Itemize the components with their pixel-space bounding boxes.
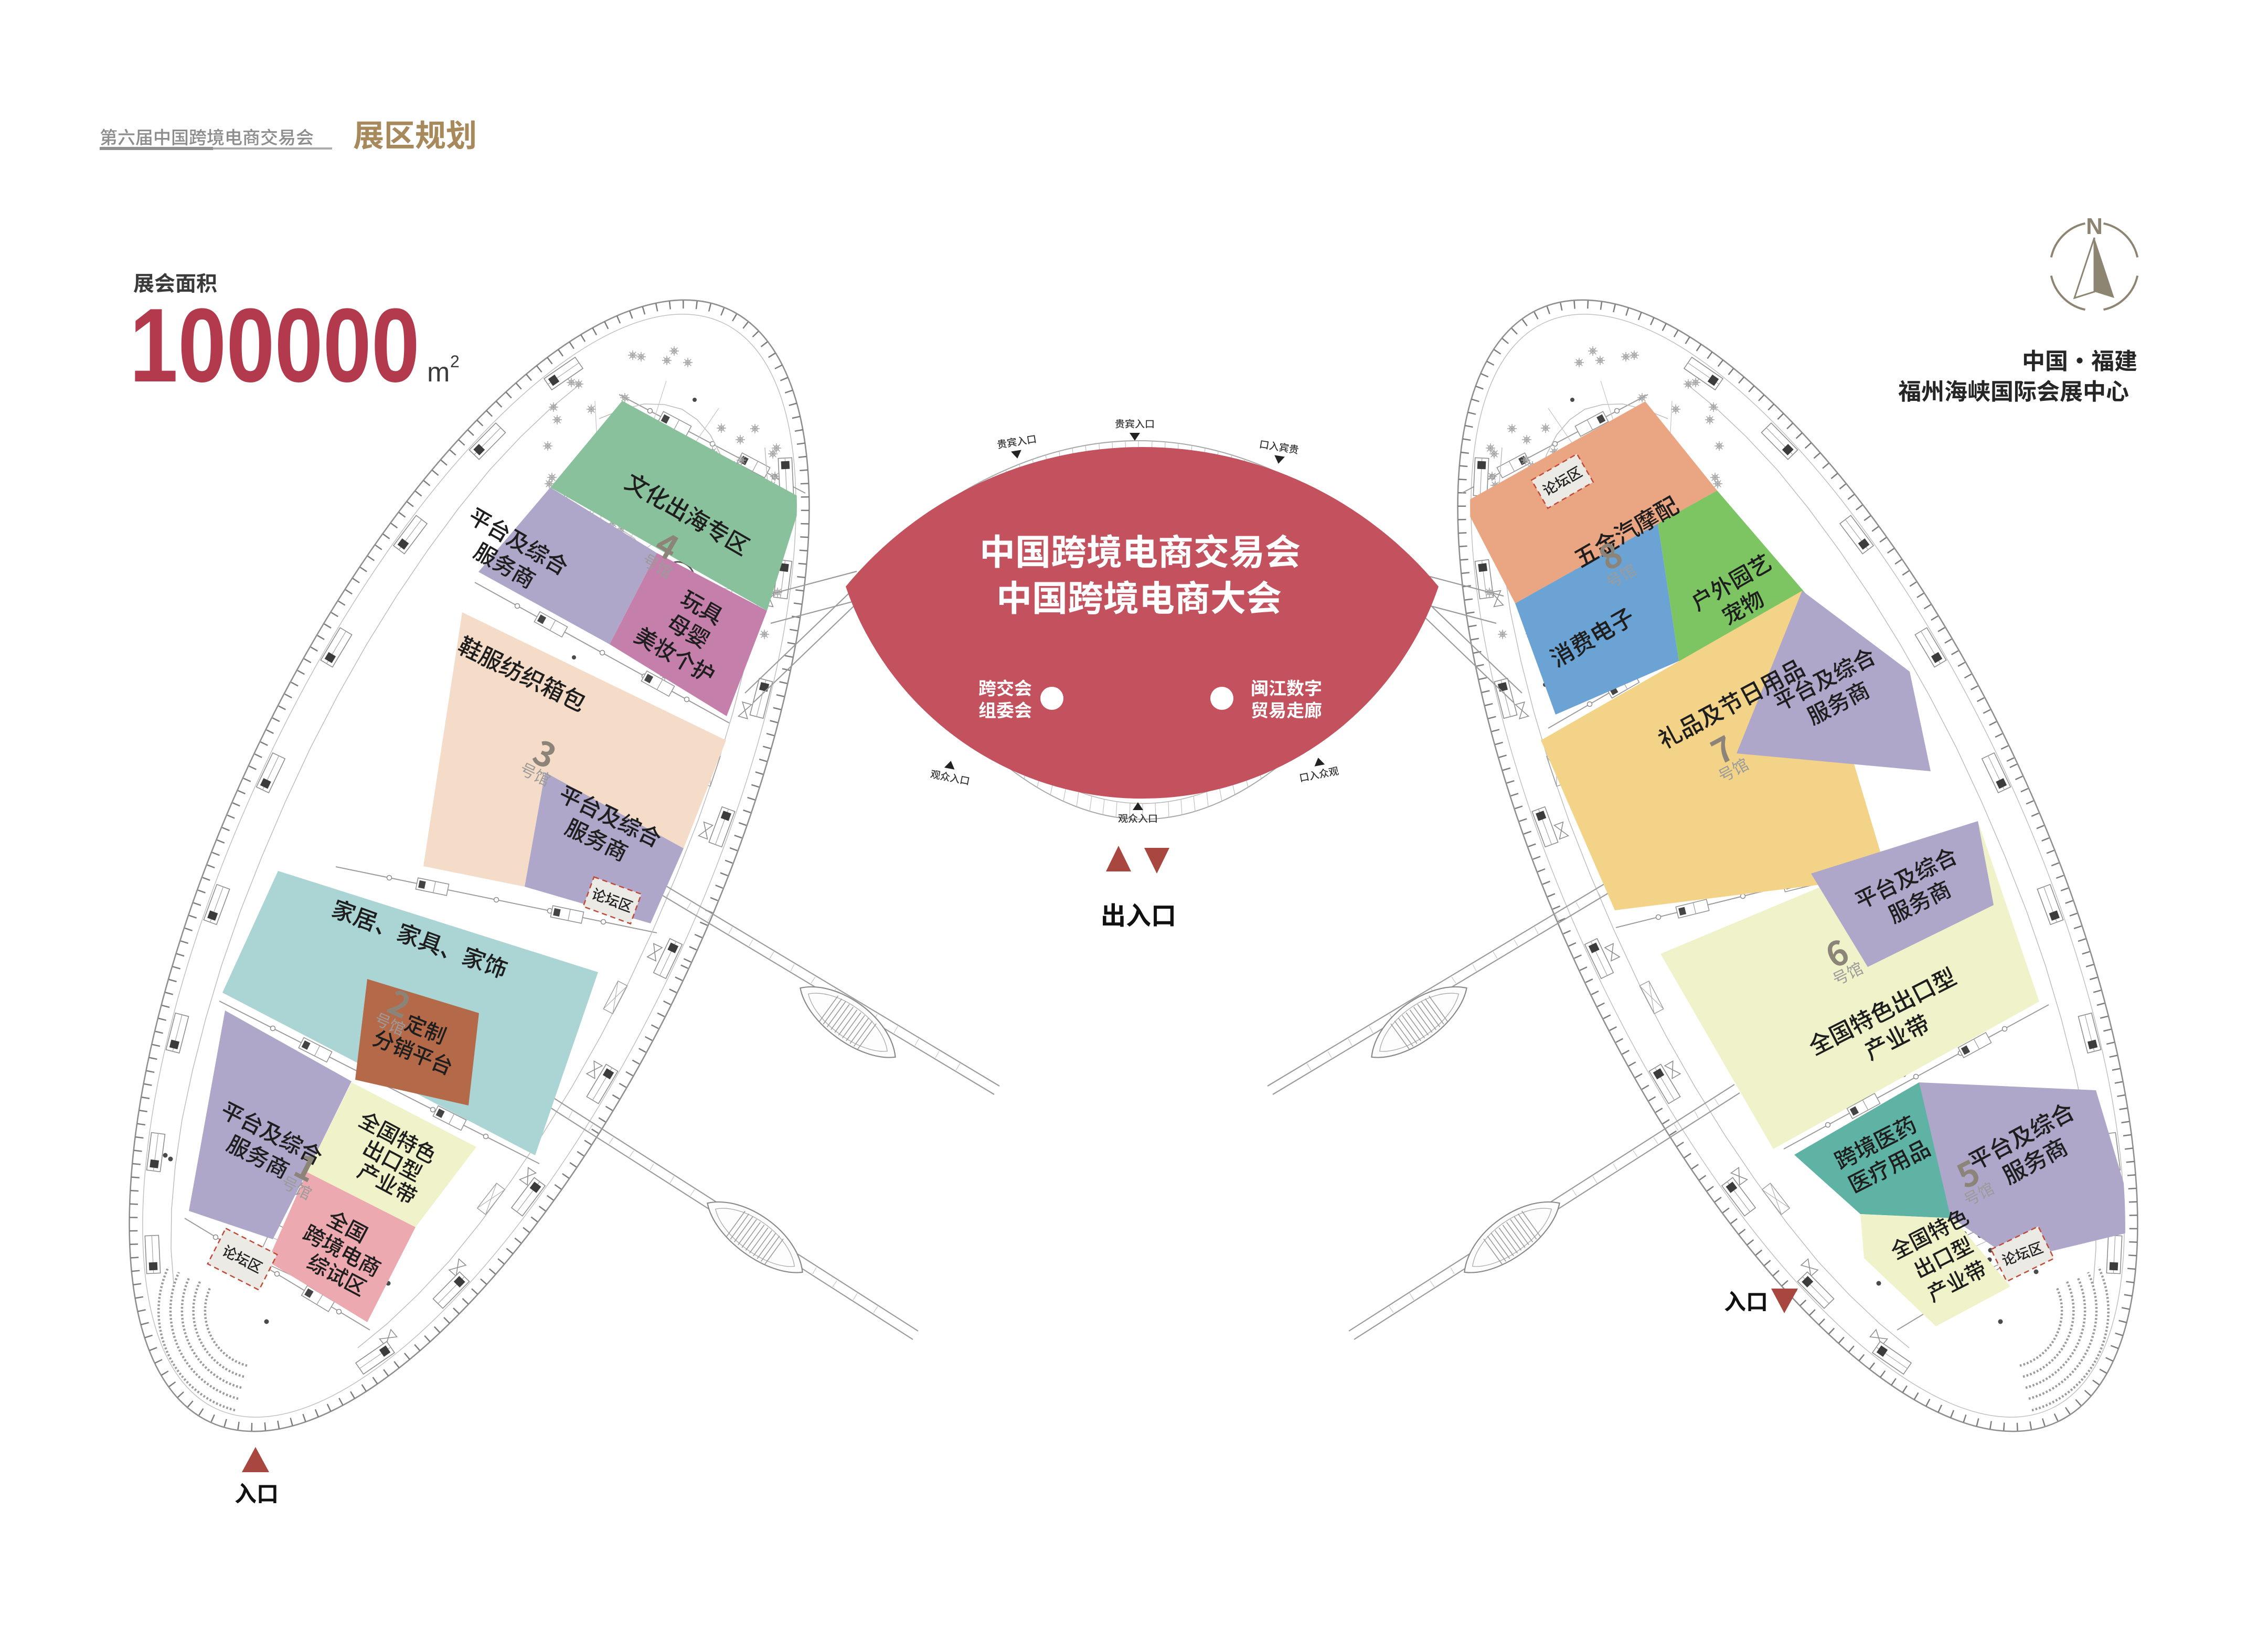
svg-text:N: N xyxy=(2086,214,2103,239)
svg-text:2: 2 xyxy=(450,352,460,371)
svg-text:100000: 100000 xyxy=(130,287,420,404)
svg-text:m: m xyxy=(427,357,450,388)
